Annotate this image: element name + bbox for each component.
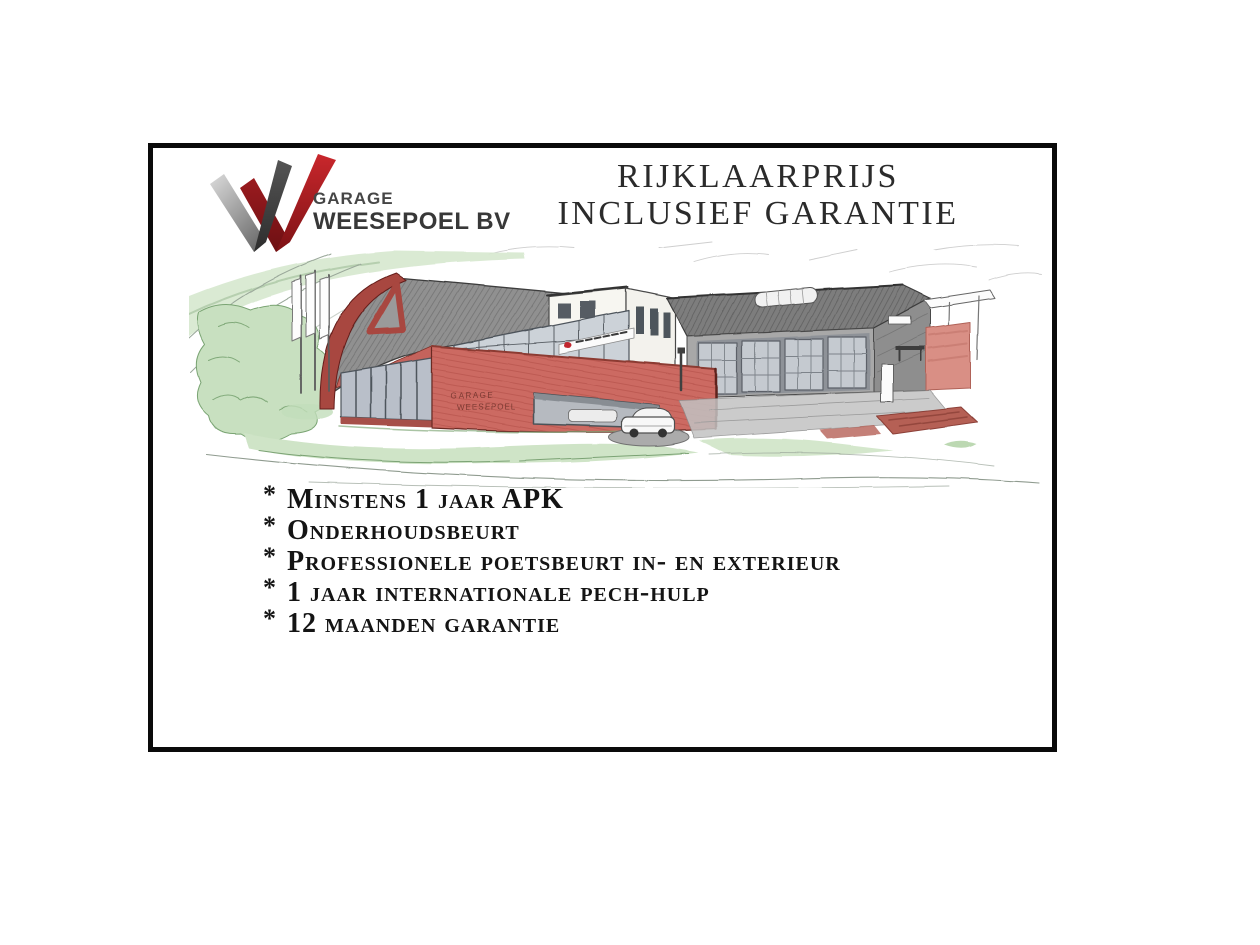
tower-window bbox=[580, 301, 595, 318]
benefit-row: * Onderhoudsbeurt bbox=[263, 515, 841, 546]
title-line-1: RIJKLAARPRIJS bbox=[478, 158, 1038, 195]
benefit-text: 12 maanden garantie bbox=[287, 608, 560, 640]
page-title: RIJKLAARPRIJS INCLUSIEF GARANTIE bbox=[478, 158, 1038, 232]
car-in-opening bbox=[569, 410, 617, 422]
flyer-frame: GARAGE WEESEPOEL BV RIJKLAARPRIJS INCLUS… bbox=[148, 143, 1057, 752]
benefits-list: * Minstens 1 jaar APK * Onderhoudsbeurt … bbox=[263, 484, 841, 639]
benefit-row: * 1 jaar internationale pech-hulp bbox=[263, 577, 841, 608]
facade-sign bbox=[889, 316, 911, 324]
benefit-text: Minstens 1 jaar APK bbox=[287, 484, 564, 516]
bullet-asterisk: * bbox=[263, 542, 287, 572]
title-line-2: INCLUSIEF GARANTIE bbox=[478, 195, 1038, 232]
forecourt-paving bbox=[679, 390, 977, 439]
benefit-row: * Professionele poetsbeurt in- en exteri… bbox=[263, 546, 841, 577]
bollard bbox=[881, 364, 893, 402]
sky-pencil-strokes bbox=[489, 242, 1041, 280]
bullet-asterisk: * bbox=[263, 604, 287, 634]
tower-window bbox=[558, 303, 571, 318]
tower-window bbox=[636, 306, 644, 334]
benefit-row: * Minstens 1 jaar APK bbox=[263, 484, 841, 515]
bullet-asterisk: * bbox=[263, 573, 287, 603]
tower-window bbox=[650, 308, 658, 336]
benefit-text: Professionele poetsbeurt in- en exterieu… bbox=[287, 546, 841, 578]
tower-window bbox=[663, 312, 670, 338]
bullet-asterisk: * bbox=[263, 511, 287, 541]
banner-logo-dot bbox=[564, 342, 572, 348]
bullet-asterisk: * bbox=[263, 480, 287, 510]
benefit-row: * 12 maanden garantie bbox=[263, 608, 841, 639]
wall-sign-line-1: GARAGE bbox=[451, 391, 494, 400]
building-sketch: GARAGE WEESEPOEL bbox=[189, 240, 1057, 488]
benefit-text: 1 jaar internationale pech-hulp bbox=[287, 577, 710, 609]
benefit-text: Onderhoudsbeurt bbox=[287, 515, 520, 547]
wall-sign-line-2: WEESEPOEL bbox=[457, 403, 516, 412]
